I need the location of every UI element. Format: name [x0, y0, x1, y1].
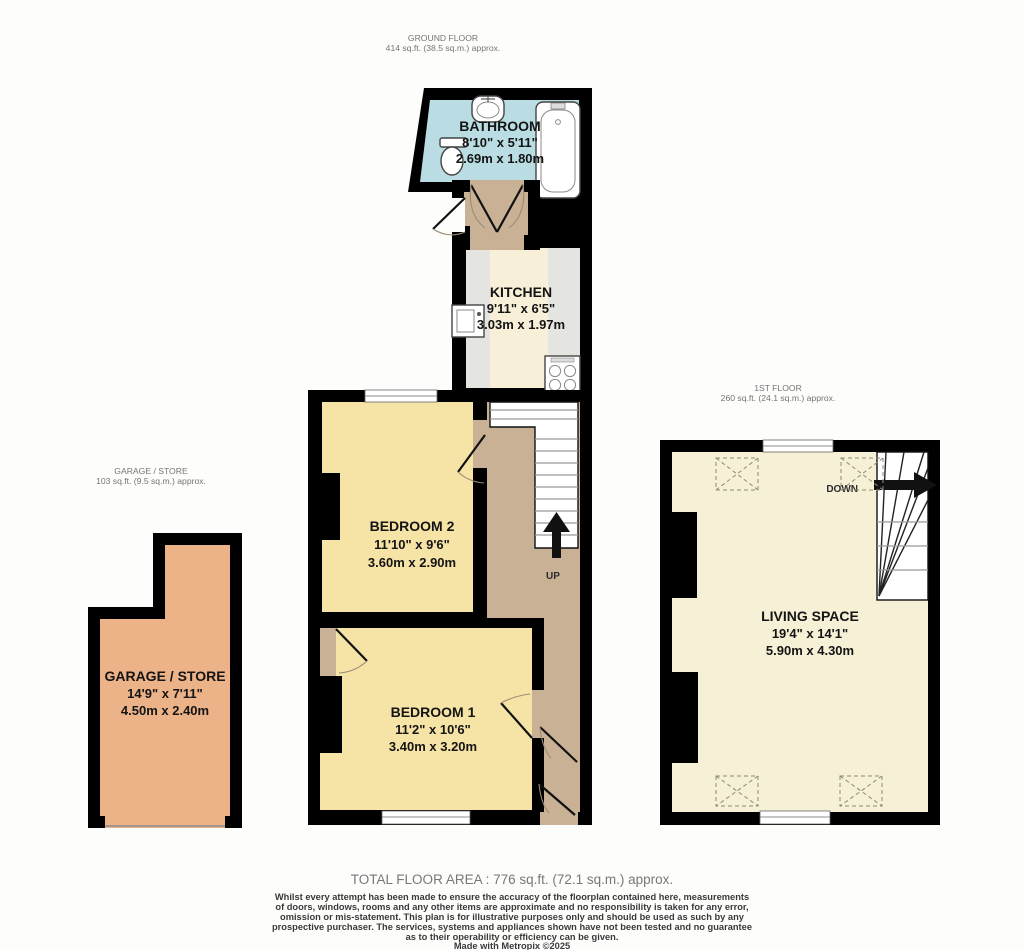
living-chimney-bottom	[660, 672, 698, 763]
first-floor-label: 1ST FLOOR 260 sq.ft. (24.1 sq.m.) approx…	[721, 383, 836, 403]
living-room: DOWN LIVING SP	[660, 440, 940, 825]
total-floor-area: TOTAL FLOOR AREA : 776 sq.ft. (72.1 sq.m…	[351, 872, 673, 887]
garage-room: GARAGE / STORE 14'9" x 7'11" 4.50m x 2.4…	[88, 533, 242, 828]
bath-icon	[536, 102, 580, 198]
bedroom1-imperial: 11'2" x 10'6"	[395, 722, 471, 737]
bedroom2-chimney	[308, 473, 340, 540]
living-window-bottom	[760, 811, 830, 824]
garage-floor-label: GARAGE / STORE 103 sq.ft. (9.5 sq.m.) ap…	[96, 466, 206, 486]
bathroom-name: BATHROOM	[459, 118, 540, 134]
bedroom1-doorway	[532, 690, 544, 738]
bedroom2-floor	[322, 402, 473, 612]
bedroom2-imperial: 11'10" x 9'6"	[374, 537, 450, 552]
first-floor-title: 1ST FLOOR	[754, 383, 802, 393]
living-chimney-top	[660, 512, 697, 598]
lobby-stub-right	[524, 235, 538, 248]
bathroom-metric: 2.69m x 1.80m	[456, 151, 544, 166]
footer: TOTAL FLOOR AREA : 776 sq.ft. (72.1 sq.m…	[272, 872, 752, 950]
bedroom1-window	[382, 811, 470, 824]
kitchen-name: KITCHEN	[490, 284, 552, 300]
garage-metric: 4.50m x 2.40m	[121, 703, 209, 718]
disclaimer-line-2: of doors, windows, rooms and any other i…	[275, 902, 748, 912]
bedroom1-floor-ext	[320, 753, 335, 810]
bedroom2-metric: 3.60m x 2.90m	[368, 555, 456, 570]
credit-line: Made with Metropix ©2025	[454, 941, 570, 950]
exterior-door	[433, 198, 465, 235]
hob-icon	[545, 356, 580, 394]
garage-name: GARAGE / STORE	[104, 668, 225, 684]
up-label: UP	[546, 571, 560, 582]
ground-floor-area: 414 sq.ft. (38.5 sq.m.) approx.	[386, 43, 501, 53]
bedroom1-thick-wall	[308, 676, 342, 753]
garage-floor-area: 103 sq.ft. (9.5 sq.m.) approx.	[96, 476, 206, 486]
bedroom2-window	[365, 390, 437, 402]
ground-main-block: UP BEDROOM 2 11'10" x 9'6" 3.60m x 2.90m…	[308, 390, 592, 825]
kitchen-metric: 3.03m x 1.97m	[477, 317, 565, 332]
first-floor-area: 260 sq.ft. (24.1 sq.m.) approx.	[721, 393, 836, 403]
kitchen-imperial: 9'11" x 6'5"	[487, 301, 555, 316]
hallway-lower	[544, 618, 580, 812]
disclaimer-line-1: Whilst every attempt has been made to en…	[275, 892, 749, 902]
bathroom-doorway	[470, 180, 524, 194]
floorplan-page: GROUND FLOOR 414 sq.ft. (38.5 sq.m.) app…	[0, 0, 1024, 950]
living-name: LIVING SPACE	[761, 608, 859, 624]
bedroom1-metric: 3.40m x 3.20m	[389, 739, 477, 754]
living-metric: 5.90m x 4.30m	[766, 643, 854, 658]
ground-floor-title: GROUND FLOOR	[408, 33, 478, 43]
bedroom2-doorway	[473, 420, 487, 468]
bedroom1-name: BEDROOM 1	[391, 704, 476, 720]
disclaimer-line-3: omission or mis-statement. This plan is …	[280, 912, 745, 922]
bedroom2-name: BEDROOM 2	[370, 518, 455, 534]
garage-imperial: 14'9" x 7'11"	[127, 686, 203, 701]
living-window-top	[763, 440, 833, 452]
ground-floor-label: GROUND FLOOR 414 sq.ft. (38.5 sq.m.) app…	[386, 33, 501, 53]
floorplan-svg: GROUND FLOOR 414 sq.ft. (38.5 sq.m.) app…	[0, 0, 1024, 950]
bathroom-imperial: 8'10" x 5'11"	[462, 135, 538, 150]
disclaimer-line-4: prospective purchaser. The services, sys…	[272, 922, 752, 932]
bedroom1-alcove	[320, 628, 336, 676]
living-imperial: 19'4" x 14'1"	[772, 626, 848, 641]
garage-floor-title: GARAGE / STORE	[114, 466, 188, 476]
